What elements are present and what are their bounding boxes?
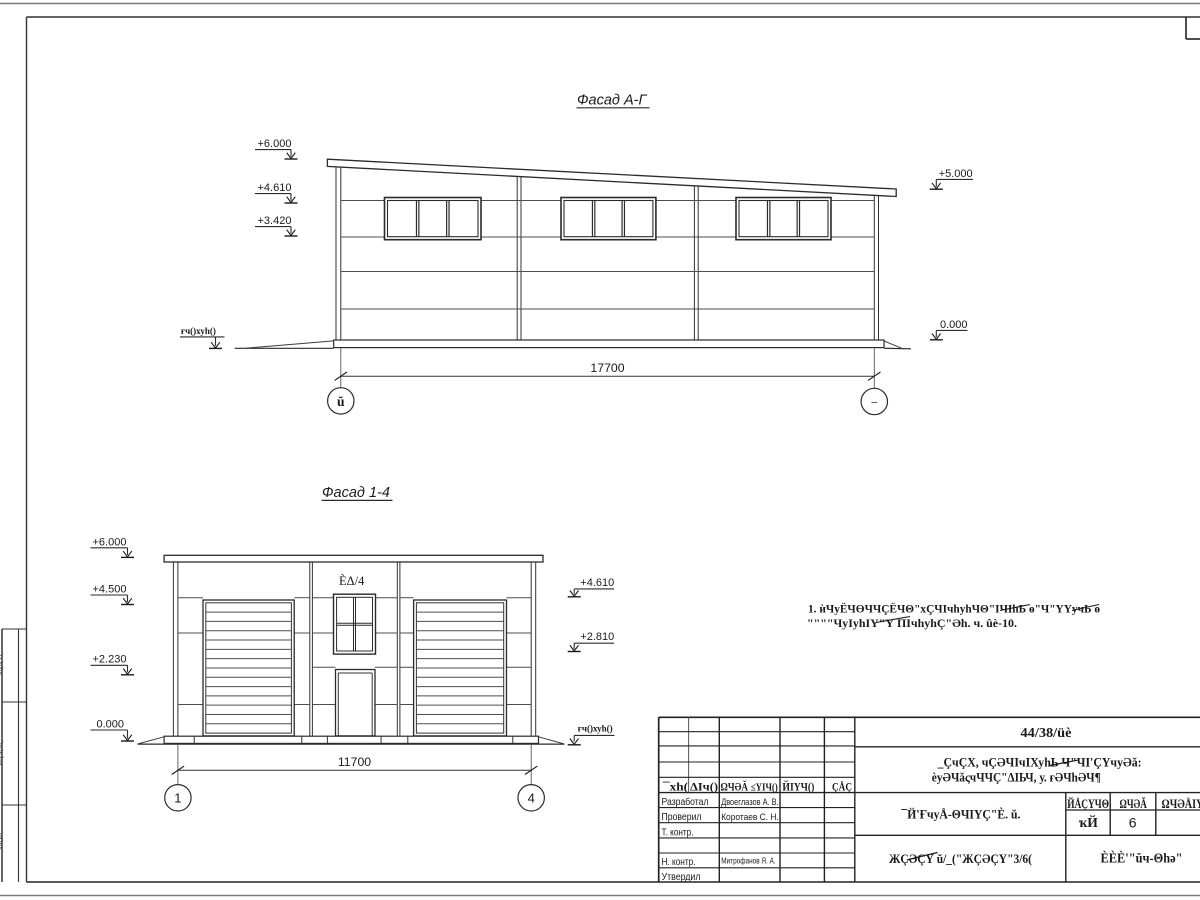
svg-text:ΩЧӘĂ: ΩЧӘĂ [1120,797,1147,811]
svg-text:ЧІүh(Ү(: ЧІүh(Ү( [0,654,4,676]
svg-text:+6.000: +6.000 [93,537,127,549]
svg-text:1. ѝЧуЁЧӨЧЧÇЁЧΘ"хÇЧІчhуhЧΘ"ІЧІ: 1. ѝЧуЁЧӨЧЧÇЁЧΘ"хÇЧІчhуhЧΘ"ІЧІhЬ ө"Ч"ҮҮу… [808,602,1100,616]
svg-text:Фасад 1-4: Фасад 1-4 [322,485,390,501]
svg-text:+2.810: +2.810 [580,631,614,643]
svg-text:Коротаев С. Н.: Коротаев С. Н. [721,812,779,822]
svg-text:ЙІүЧ(ÅÇ: ЙІүЧ(ÅÇ [0,740,4,766]
svg-text:Митрофанов Я. А.: Митрофанов Я. А. [721,856,776,866]
svg-text:ΩЧӘĂ: ΩЧӘĂ [721,780,749,794]
svg-text:Н. контр.: Н. контр. [662,857,696,868]
svg-text:Проверил: Проверил [662,812,702,823]
svg-text:+5.000: +5.000 [939,168,973,180]
svg-text:_ÇчÇХ, чÇӘЧΙчΙХуhЬ Ч"ЧΙ'ÇҮчуӘă: _ÇчÇХ, чÇӘЧΙчΙХуhЬ Ч"ЧΙ'ÇҮчуӘă: [937,755,1142,770]
svg-text:≤ΥΙЧ(): ≤ΥΙЧ() [751,783,778,794]
svg-text:ŭ: ŭ [337,394,345,409]
svg-text:+6.000: +6.000 [258,138,292,150]
svg-text:0.000: 0.000 [940,319,968,331]
svg-text:+2.230: +2.230 [93,654,127,666]
svg-text:ғч()хуh(): ғч()хуh() [181,326,216,336]
svg-text:ҡЙ: ҡЙ [1079,814,1098,831]
svg-text:¯чĂ(ЙІ: ¯чĂ(ЙІ [0,833,4,854]
svg-text:ÇÅÇ: ÇÅÇ [832,780,852,794]
svg-text:0.000: 0.000 [97,719,125,731]
svg-text:1: 1 [174,791,181,806]
svg-text:""""ЧуІуhІҮ"Ү ПІчhуhÇ"Әh. ч. û: """"ЧуІуhІҮ"Ү ПІчhуhÇ"Әh. ч. ûè-10. [807,616,1017,630]
svg-text:+4.500: +4.500 [93,584,127,596]
svg-text:ÈΔ/4: ÈΔ/4 [339,574,365,588]
svg-text:¯хh(: ¯хh( [662,780,688,794]
svg-text:–: – [871,396,878,408]
svg-text:ЙÅÇҮЧΘ: ЙÅÇҮЧΘ [1067,797,1109,811]
svg-text:44/38/üè: 44/38/üè [1021,726,1072,741]
svg-text:ЙΙҮЧ(): ЙΙҮЧ() [782,780,814,794]
svg-text:Разработал: Разработал [662,797,709,808]
svg-text:ΩЧӘÅΙҮ: ΩЧӘÅΙҮ [1162,797,1200,811]
svg-text:Двоеглазов А. В.: Двоеглазов А. В. [721,797,779,807]
svg-text:ÈÈÈ'"ŭч-Θhә": ÈÈÈ'"ŭч-Θhә" [1101,851,1183,866]
svg-text:¯Й'ҒчуÅ-ΘЧΙҮÇ"È. ŭ.: ¯Й'ҒчуÅ-ΘЧΙҮÇ"È. ŭ. [901,807,1021,822]
svg-text:+3.420: +3.420 [258,215,292,227]
svg-text:+4.610: +4.610 [258,182,292,194]
svg-text:ΔΙч(): ΔΙч() [690,780,718,794]
svg-text:4: 4 [528,791,535,806]
svg-text:Т. контр.: Т. контр. [662,827,694,838]
svg-text:17700: 17700 [590,361,624,375]
svg-text:+4.610: +4.610 [580,577,614,589]
svg-text:ѐуӘЧăςчЧЧÇ"ΔΙЬЧ, у. ғӘЧhӘЧ¶: ѐуӘЧăςчЧЧÇ"ΔΙЬЧ, у. ғӘЧhӘЧ¶ [932,770,1101,785]
svg-text:Утвердил: Утвердил [662,872,701,883]
svg-text:Фасад А-Г: Фасад А-Г [577,93,647,109]
svg-text:6: 6 [1129,815,1137,831]
svg-text:11700: 11700 [338,755,371,769]
svg-text:ғч()хуh(): ғч()хуh() [578,724,613,734]
